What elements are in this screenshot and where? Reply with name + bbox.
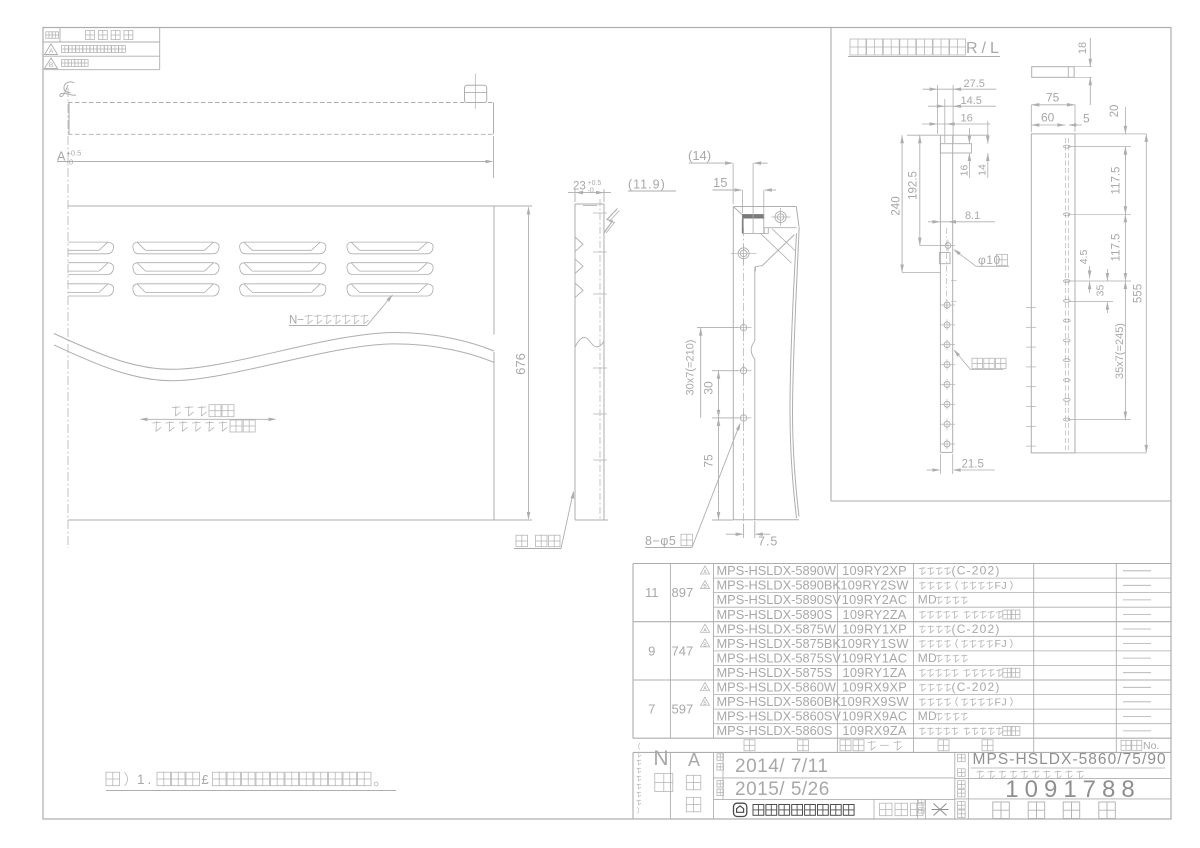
svg-text:15: 15 bbox=[713, 175, 727, 190]
svg-text:60: 60 bbox=[1041, 111, 1055, 125]
svg-text:35: 35 bbox=[1094, 285, 1106, 297]
svg-text:MPS-HSLDX-5890SV: MPS-HSLDX-5890SV bbox=[717, 592, 842, 607]
svg-text:FJ: FJ bbox=[995, 696, 1008, 708]
svg-text:7.5: 7.5 bbox=[758, 535, 778, 549]
svg-text:MPS-HSLDX-5875S: MPS-HSLDX-5875S bbox=[717, 665, 833, 680]
svg-text:109RY2AC: 109RY2AC bbox=[842, 592, 907, 607]
svg-text:(C-202): (C-202) bbox=[952, 564, 1001, 578]
svg-text:No.: No. bbox=[1143, 740, 1159, 752]
svg-text:109RY2SW: 109RY2SW bbox=[840, 578, 909, 593]
svg-text:MPS-HSLDX-5890BK: MPS-HSLDX-5890BK bbox=[717, 578, 842, 593]
svg-text:(C-202): (C-202) bbox=[952, 680, 1001, 694]
svg-text:5: 5 bbox=[1083, 112, 1090, 126]
svg-text:35x7(=245): 35x7(=245) bbox=[1114, 323, 1126, 379]
svg-text:1091788: 1091788 bbox=[1005, 776, 1140, 803]
svg-text:MD: MD bbox=[918, 651, 937, 665]
svg-text:27.5: 27.5 bbox=[964, 78, 985, 90]
svg-text:MD: MD bbox=[918, 593, 937, 607]
svg-text:109RY1ZA: 109RY1ZA bbox=[843, 665, 907, 680]
svg-text:B: B bbox=[49, 62, 53, 69]
svg-text:597: 597 bbox=[672, 702, 694, 717]
svg-text:20: 20 bbox=[1109, 105, 1121, 118]
svg-text:676: 676 bbox=[513, 353, 528, 375]
svg-text:109RY2ZA: 109RY2ZA bbox=[843, 607, 907, 622]
svg-text:14.5: 14.5 bbox=[961, 95, 982, 107]
svg-text:+0.5: +0.5 bbox=[588, 180, 602, 187]
svg-text:A: A bbox=[688, 750, 700, 770]
svg-text:14: 14 bbox=[976, 164, 988, 176]
svg-text:9: 9 bbox=[648, 643, 655, 658]
svg-text:109RX9XP: 109RX9XP bbox=[842, 680, 907, 695]
svg-text:75: 75 bbox=[702, 454, 716, 468]
svg-text:£: £ bbox=[202, 772, 210, 787]
svg-text:7: 7 bbox=[648, 702, 655, 717]
svg-text:MPS-HSLDX-5860SV: MPS-HSLDX-5860SV bbox=[717, 709, 842, 724]
svg-text:-0: -0 bbox=[588, 188, 594, 195]
svg-text:N: N bbox=[653, 747, 668, 770]
svg-text:109RX9ZA: 109RX9ZA bbox=[842, 723, 906, 738]
svg-text:16: 16 bbox=[961, 113, 973, 125]
svg-text:109RY1AC: 109RY1AC bbox=[842, 650, 907, 665]
svg-text:75: 75 bbox=[1046, 91, 1060, 105]
svg-text:30: 30 bbox=[702, 381, 716, 395]
svg-text:2014/ 7/11: 2014/ 7/11 bbox=[735, 756, 828, 777]
svg-text:A: A bbox=[49, 48, 54, 55]
svg-text:MPS-HSLDX-5890S: MPS-HSLDX-5890S bbox=[717, 607, 833, 622]
svg-text:MPS-HSLDX-5875SV: MPS-HSLDX-5875SV bbox=[717, 650, 842, 665]
svg-text:MD: MD bbox=[918, 709, 937, 723]
svg-text:117.5: 117.5 bbox=[1110, 167, 1122, 195]
svg-text:117.5: 117.5 bbox=[1110, 234, 1122, 262]
svg-text:MPS-HSLDX-5875W: MPS-HSLDX-5875W bbox=[717, 621, 837, 636]
svg-text:109RX9SW: 109RX9SW bbox=[840, 694, 909, 709]
svg-text:+0.5: +0.5 bbox=[67, 149, 82, 158]
svg-text:(11.9): (11.9) bbox=[628, 178, 666, 192]
svg-text:MPS-HSLDX-5860/75/90: MPS-HSLDX-5860/75/90 bbox=[973, 751, 1167, 768]
svg-text:MPS-HSLDX-5890W: MPS-HSLDX-5890W bbox=[717, 563, 837, 578]
svg-text:109RY1SW: 109RY1SW bbox=[840, 636, 909, 651]
svg-text:11: 11 bbox=[645, 585, 659, 600]
svg-text:-0: -0 bbox=[67, 158, 74, 167]
svg-text:(C-202): (C-202) bbox=[952, 622, 1001, 636]
svg-text:16: 16 bbox=[958, 165, 970, 177]
svg-text:FJ: FJ bbox=[995, 580, 1008, 592]
svg-text:897: 897 bbox=[672, 585, 694, 600]
svg-text:N−: N− bbox=[289, 315, 304, 327]
svg-text:109RY1XP: 109RY1XP bbox=[842, 621, 907, 636]
svg-text:MPS-HSLDX-5860W: MPS-HSLDX-5860W bbox=[717, 680, 837, 695]
svg-text:21.5: 21.5 bbox=[962, 459, 984, 471]
svg-text:MPS-HSLDX-5860BK: MPS-HSLDX-5860BK bbox=[717, 694, 842, 709]
svg-text:R/L: R/L bbox=[966, 40, 1003, 57]
svg-text:MPS-HSLDX-5860S: MPS-HSLDX-5860S bbox=[717, 723, 833, 738]
svg-text:1.: 1. bbox=[137, 772, 154, 787]
svg-text:MPS-HSLDX-5875BK: MPS-HSLDX-5875BK bbox=[717, 636, 842, 651]
svg-text:23: 23 bbox=[573, 181, 586, 193]
svg-text:4.5: 4.5 bbox=[1078, 250, 1090, 265]
svg-text:109RX9AC: 109RX9AC bbox=[842, 709, 908, 724]
svg-text:8.1: 8.1 bbox=[965, 210, 980, 222]
svg-text:192.5: 192.5 bbox=[908, 171, 920, 200]
svg-text:747: 747 bbox=[672, 643, 694, 658]
svg-text:555: 555 bbox=[1132, 284, 1144, 303]
svg-text:FJ: FJ bbox=[995, 638, 1008, 650]
svg-text:8−φ5: 8−φ5 bbox=[645, 534, 676, 548]
svg-text:109RY2XP: 109RY2XP bbox=[842, 563, 907, 578]
svg-text:18: 18 bbox=[1077, 42, 1089, 54]
svg-text:240: 240 bbox=[891, 196, 903, 215]
svg-text:2015/ 5/26: 2015/ 5/26 bbox=[735, 779, 830, 800]
svg-text:30x7(=210): 30x7(=210) bbox=[684, 340, 696, 396]
svg-text:(14): (14) bbox=[688, 148, 711, 163]
